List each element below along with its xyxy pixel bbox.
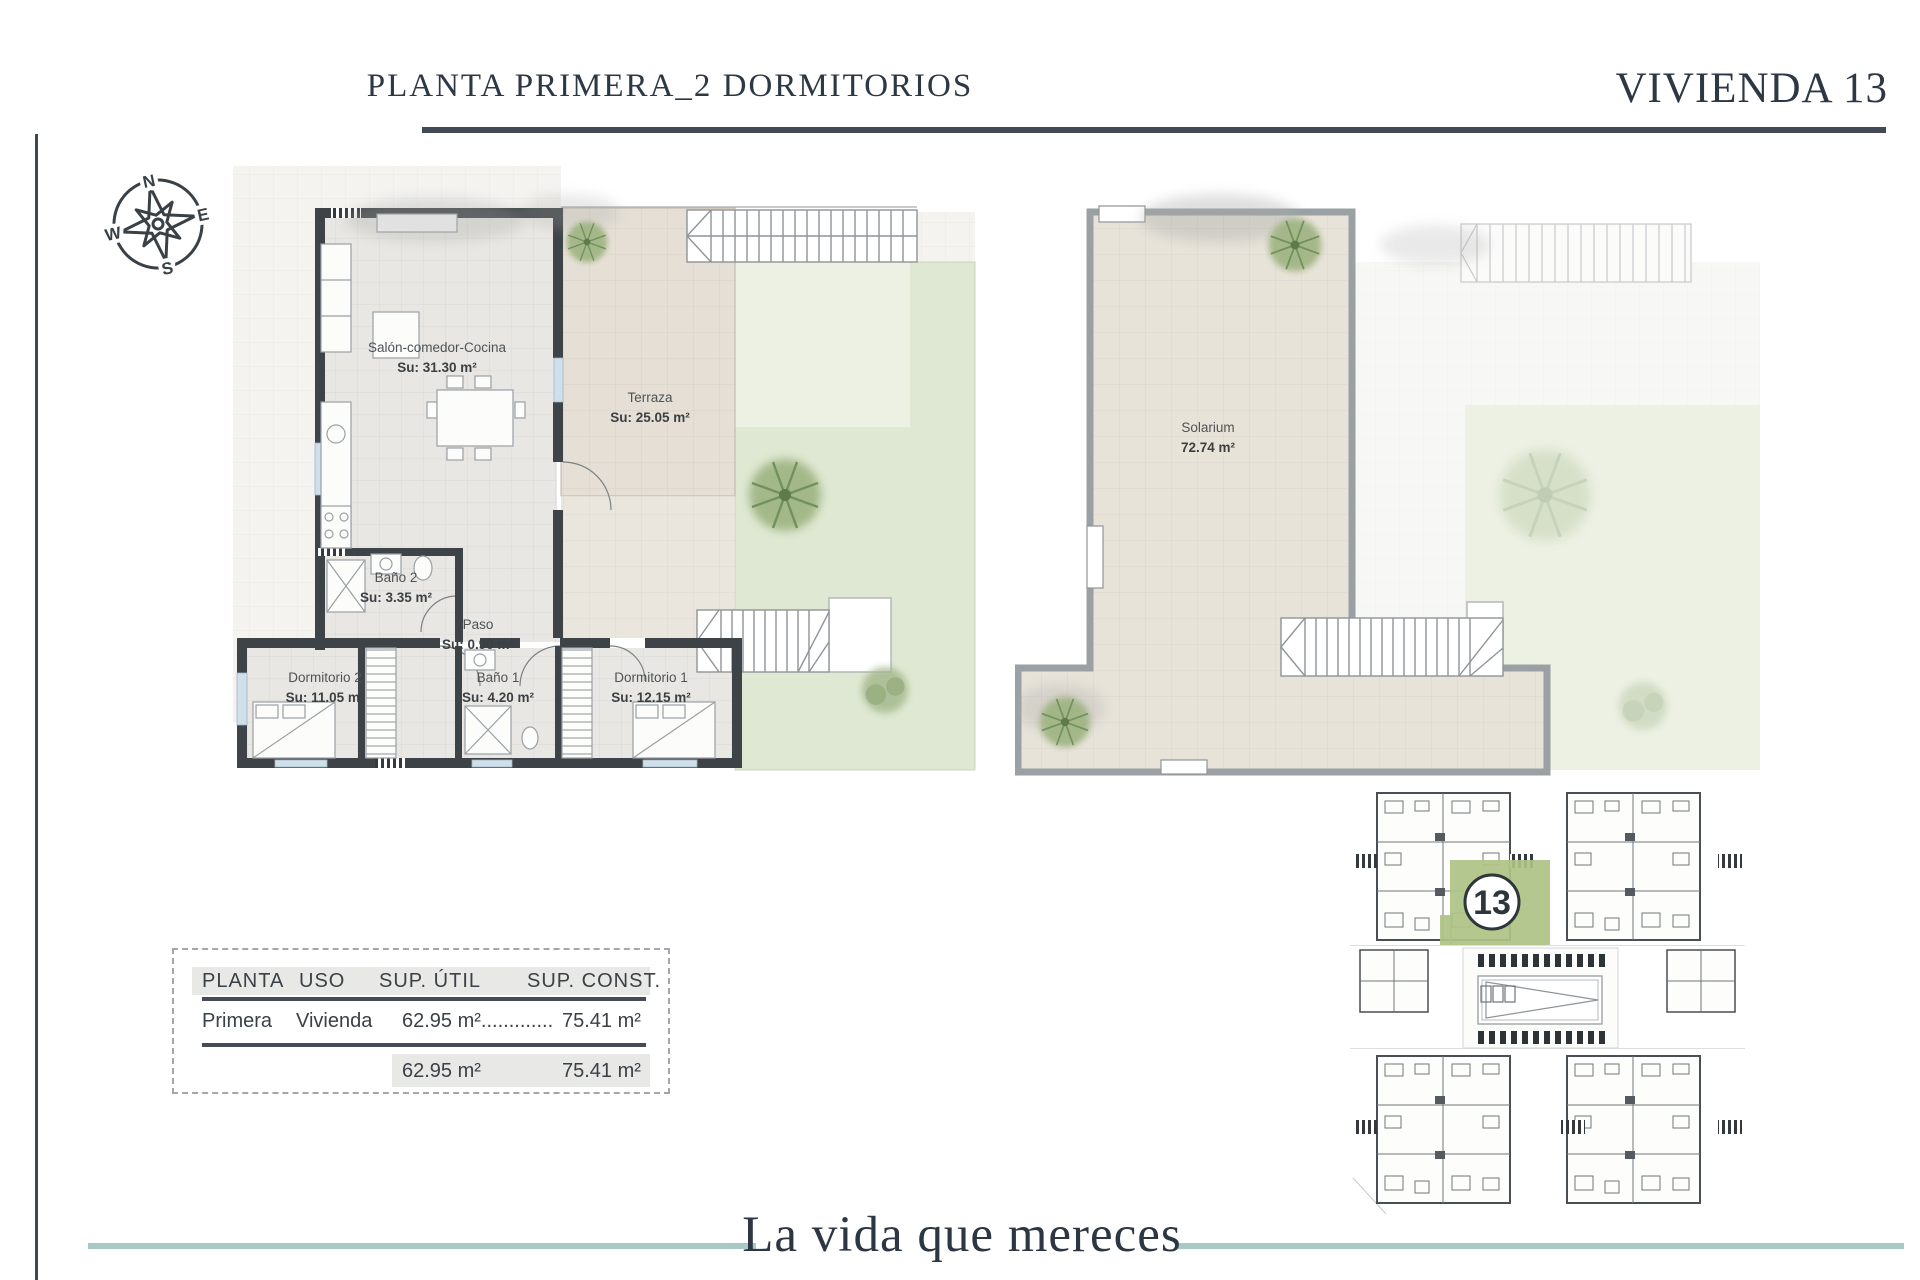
tagline: La vida que mereces	[742, 1206, 1182, 1264]
living-floor	[323, 216, 557, 556]
room-area: Su: 25.05 m²	[610, 408, 690, 428]
room-label-dormitorio2: Dormitorio 2 Su: 11.05 m²	[286, 668, 365, 707]
tagline-rule-left	[88, 1243, 756, 1249]
room-label-salon: Salón-comedor-Cocina Su: 31.30 m²	[368, 338, 506, 377]
room-name: Baño 2	[360, 568, 432, 588]
room-area: 72.74 m²	[1181, 438, 1235, 458]
page-title: PLANTA PRIMERA_2 DORMITORIOS	[367, 68, 973, 105]
solarium-plan	[1015, 150, 1760, 790]
col-header-sup-const: SUP. CONST.	[527, 970, 661, 993]
room-name: Dormitorio 2	[286, 668, 365, 688]
garden-light	[735, 262, 910, 427]
wardrobe	[366, 648, 396, 758]
cell-sup-const: 75.41 m²	[562, 1010, 641, 1033]
kitchen-counter	[321, 402, 351, 548]
site-plan: 13	[1350, 790, 1745, 1215]
left-edge-line	[35, 134, 38, 1280]
apartment-block	[1377, 1056, 1510, 1203]
room-label-solarium: Solarium 72.74 m²	[1181, 418, 1235, 457]
shadow-blob	[1380, 225, 1490, 265]
room-label-bano1: Baño 1 Su: 4.20 m²	[462, 668, 534, 707]
tagline-rule-right	[1178, 1243, 1904, 1249]
pool	[1478, 976, 1602, 1024]
cell-planta: Primera	[202, 1010, 272, 1033]
room-label-dormitorio1: Dormitorio 1 Su: 12.15 m²	[611, 668, 691, 707]
room-area: Su: 4.20 m²	[462, 688, 534, 708]
room-area: Su: 3.35 m²	[360, 588, 432, 608]
header-rule	[422, 127, 1886, 133]
ghost-stairs	[1461, 224, 1691, 282]
compass-s: S	[160, 258, 175, 279]
compass-w: W	[103, 223, 124, 245]
bed-dormitorio-1	[633, 702, 715, 758]
room-label-bano2: Baño 2 Su: 3.35 m²	[360, 568, 432, 607]
cell-uso: Vivienda	[296, 1010, 372, 1033]
sofa	[321, 244, 351, 352]
room-area: Su: 31.30 m²	[368, 358, 506, 378]
bed-dormitorio-2	[253, 702, 335, 758]
shadow-blob	[345, 198, 525, 242]
col-header-sup-util: SUP. ÚTIL	[379, 970, 481, 993]
areas-table: PLANTA USO SUP. ÚTIL SUP. CONST. Primera…	[172, 948, 670, 1094]
col-header-planta: PLANTA	[202, 970, 284, 993]
entry-hatch	[375, 758, 405, 768]
room-name: Paso	[442, 615, 514, 635]
apartment-block	[1567, 793, 1700, 940]
cell-sup-util: 62.95 m².............	[402, 1010, 553, 1033]
room-name: Dormitorio 1	[611, 668, 691, 688]
entry-hatch	[317, 548, 345, 556]
table-divider	[202, 997, 646, 1001]
room-area: Su: 0.90 m²	[442, 635, 514, 655]
compass-n: N	[141, 171, 157, 192]
room-name: Terraza	[610, 388, 690, 408]
apartment-block	[1567, 1056, 1700, 1203]
col-header-uso: USO	[299, 970, 345, 993]
room-name: Baño 1	[462, 668, 534, 688]
unit-title: VIVIENDA 13	[1615, 64, 1888, 113]
room-label-terraza: Terraza Su: 25.05 m²	[610, 388, 690, 427]
compass-e: E	[196, 204, 211, 225]
room-area: Su: 12.15 m²	[611, 688, 691, 708]
room-name: Solarium	[1181, 418, 1235, 438]
shadow-blob	[520, 194, 620, 230]
room-label-paso: Paso Su: 0.90 m²	[442, 615, 514, 654]
total-sup-util: 62.95 m²	[402, 1060, 481, 1083]
room-name: Salón-comedor-Cocina	[368, 338, 506, 358]
room-area: Su: 11.05 m²	[286, 688, 365, 708]
compass-icon: N E S W	[103, 158, 213, 286]
plan-sheet: { "header": { "title": "PLANTA PRIMERA_2…	[0, 0, 1920, 1280]
unit-13-badge: 13	[1465, 875, 1519, 929]
wardrobe	[562, 648, 592, 758]
total-sup-const: 75.41 m²	[562, 1060, 641, 1083]
pool-area	[1463, 948, 1618, 1048]
table-divider	[202, 1043, 646, 1047]
unit-13-number: 13	[1473, 884, 1511, 922]
